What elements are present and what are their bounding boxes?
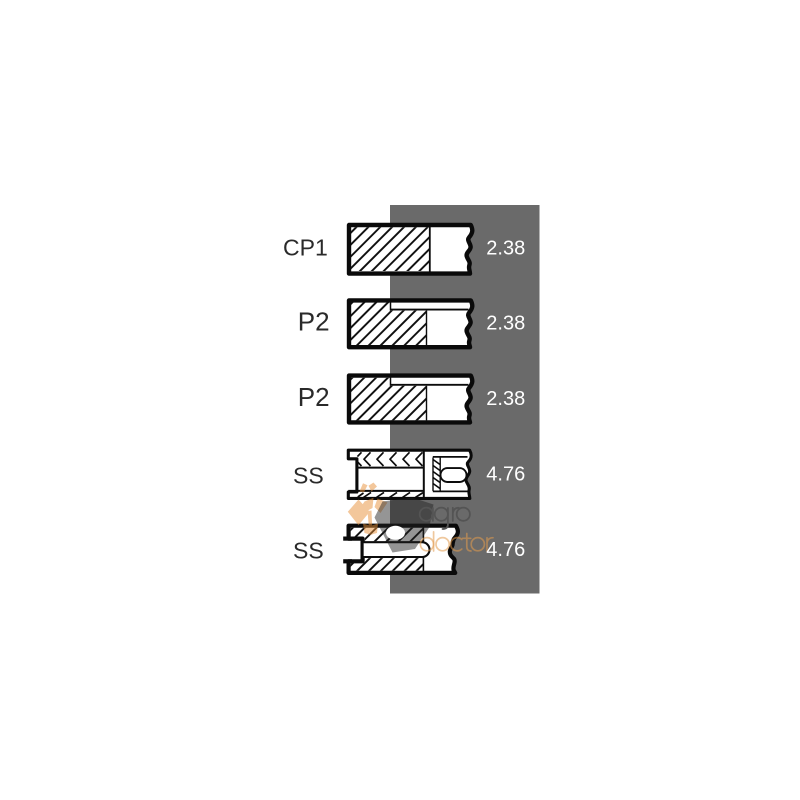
svg-text:4.76: 4.76 xyxy=(486,539,525,561)
svg-text:SS: SS xyxy=(293,462,324,488)
svg-text:CP1: CP1 xyxy=(283,235,328,261)
svg-text:2.38: 2.38 xyxy=(486,388,525,410)
svg-text:SS: SS xyxy=(293,538,324,564)
svg-text:2.38: 2.38 xyxy=(486,313,525,335)
svg-text:4.76: 4.76 xyxy=(486,463,525,485)
svg-text:2.38: 2.38 xyxy=(486,237,525,259)
svg-text:P2: P2 xyxy=(298,307,330,337)
svg-text:P2: P2 xyxy=(298,382,330,412)
